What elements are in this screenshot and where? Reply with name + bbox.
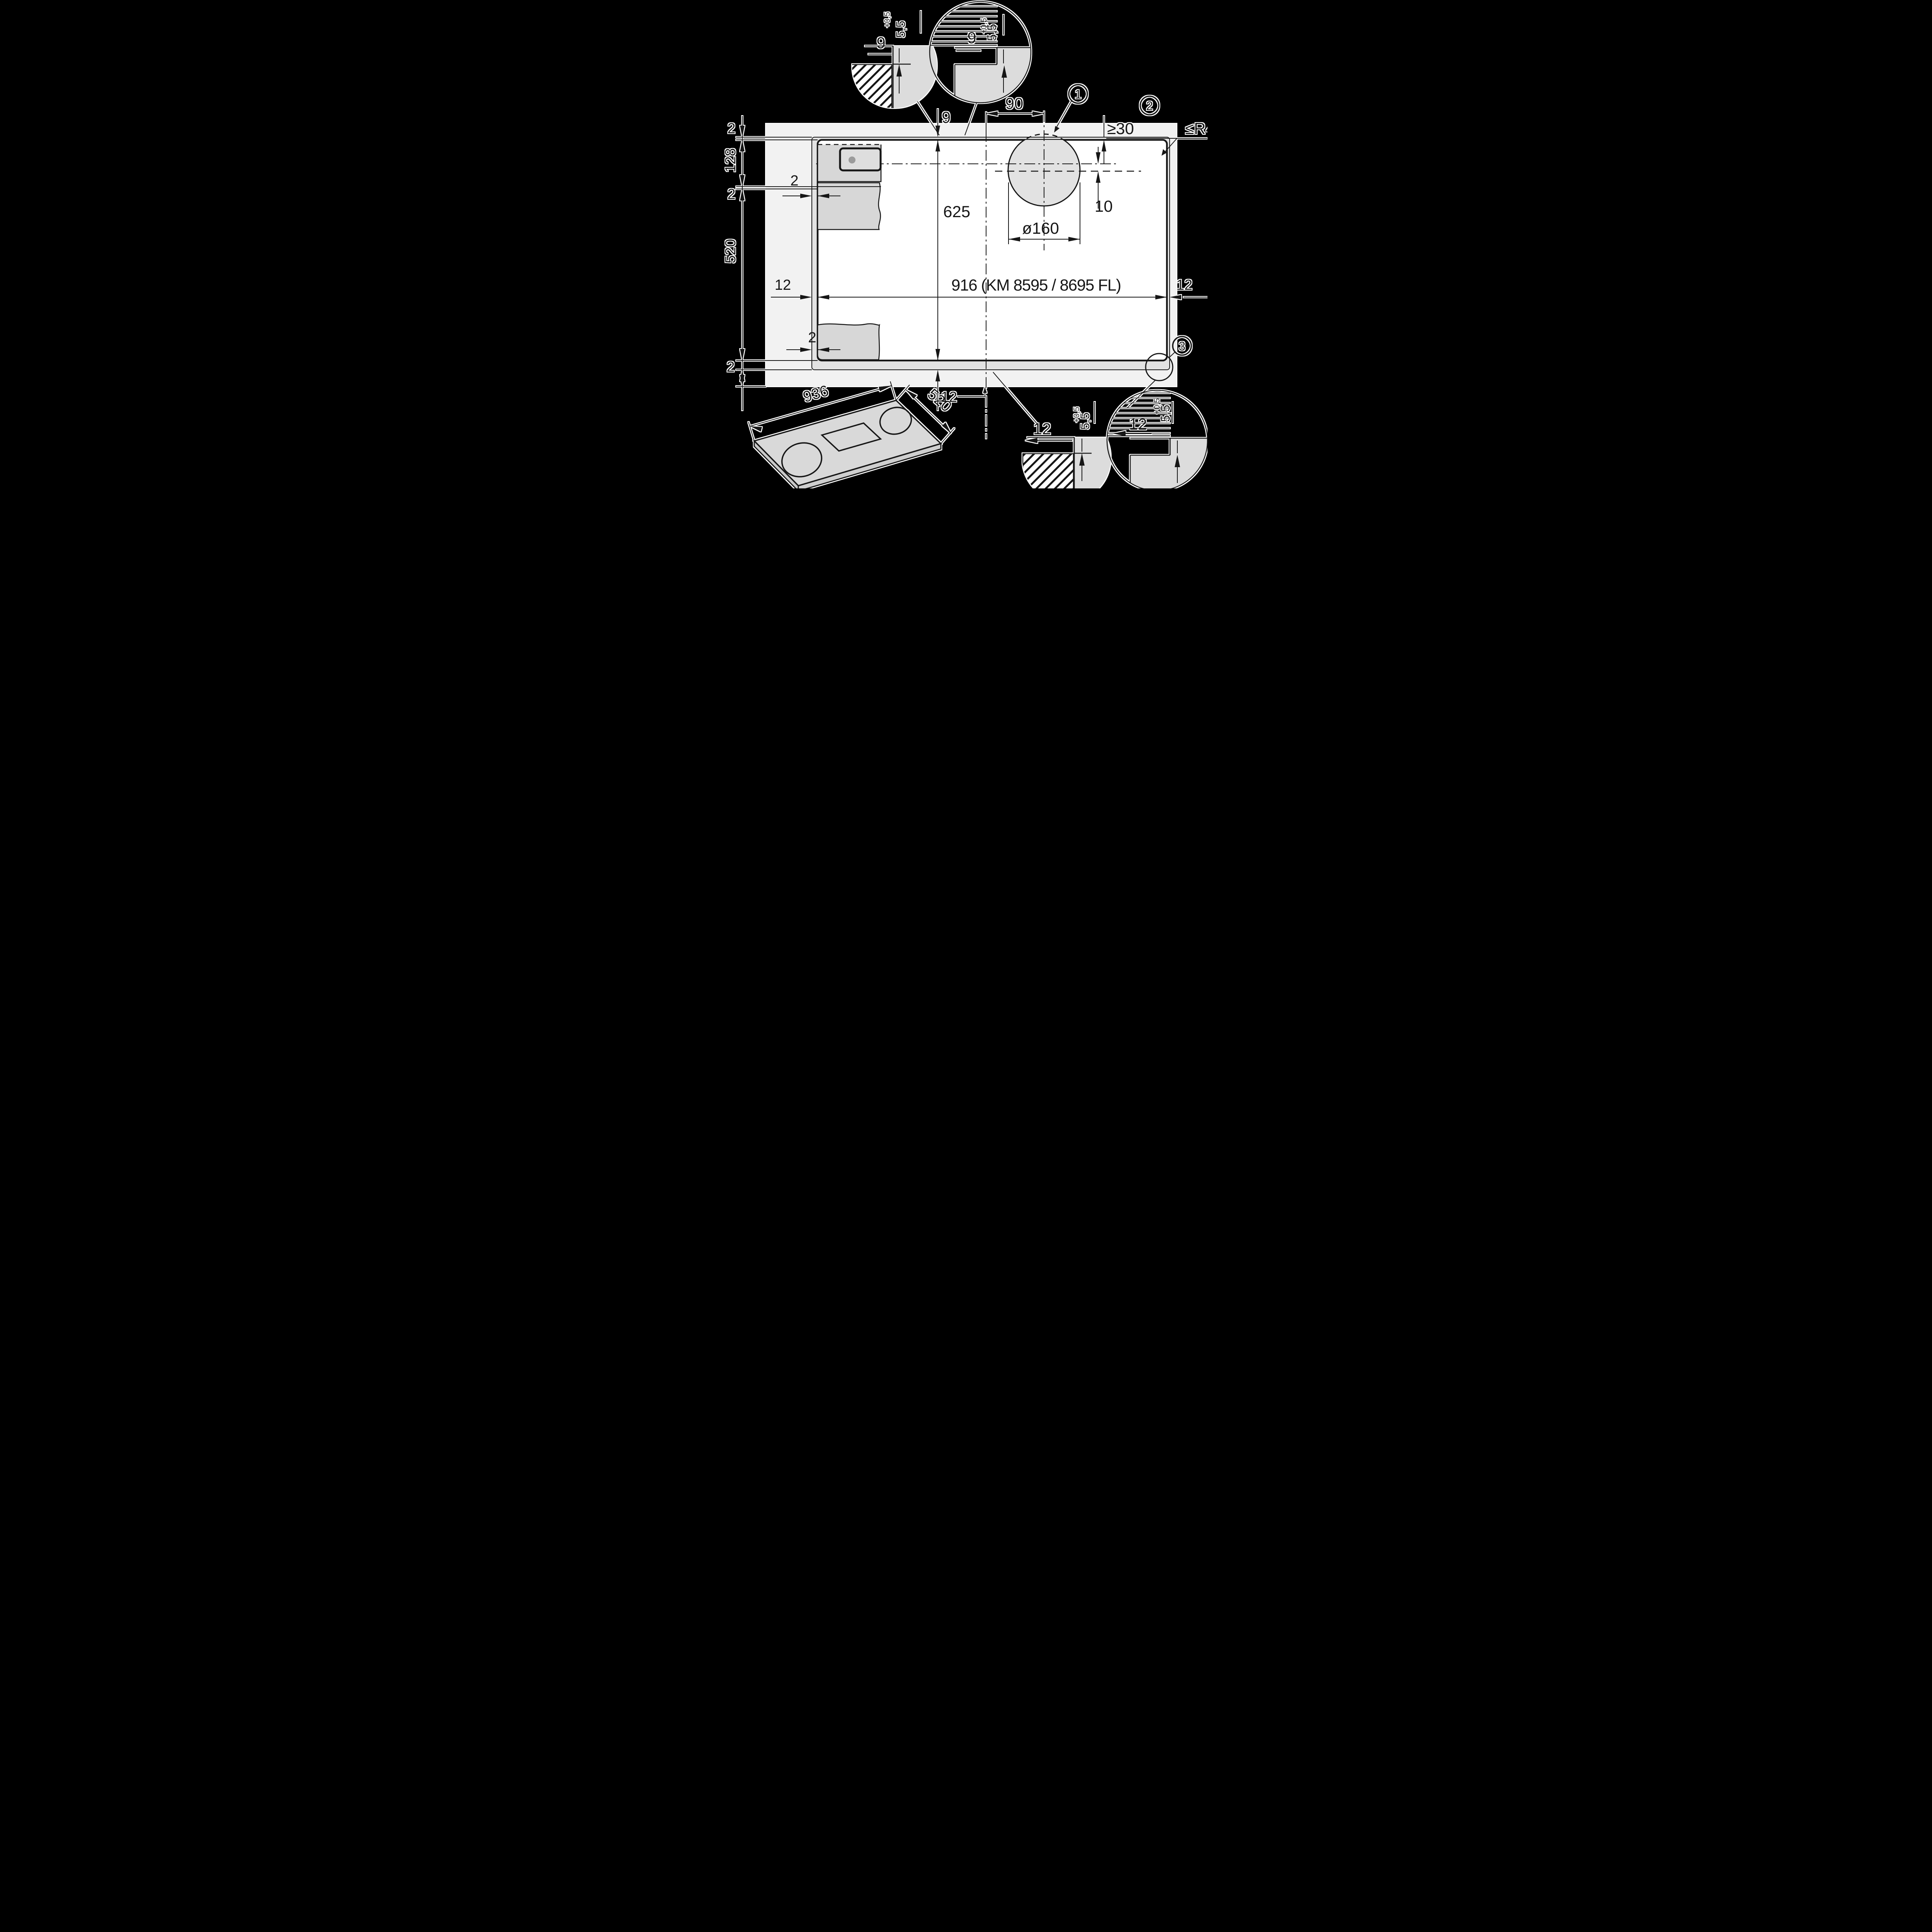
chain-top-gap-label: 2 <box>727 121 735 137</box>
chain-mid-gap-label: 2 <box>727 186 735 202</box>
worktop-hatch <box>851 65 892 121</box>
cable-gland-dot <box>849 156 855 163</box>
detail-tolerance-label: +0,5 <box>1072 407 1081 423</box>
glass-section <box>893 46 940 110</box>
mains-connection-box <box>840 148 881 170</box>
chain-bottom-gap-label: 2 <box>726 359 735 375</box>
hole-diameter-label: ø160 <box>1022 219 1059 237</box>
detail-top-center: 9 5,5 +0,5 <box>930 2 1031 103</box>
mains-box-unit <box>818 145 881 182</box>
detail-width-label: 12 <box>1033 420 1051 438</box>
cabinet-part-upper <box>818 183 881 230</box>
gap-lower-label: 2 <box>808 330 816 346</box>
detail-tolerance-label: +0,5 <box>883 12 892 28</box>
glass-section <box>1130 438 1207 488</box>
width-arrow <box>1025 438 1037 443</box>
cutout-width-label: 916 (KM 8595 / 8695 FL) <box>951 276 1121 294</box>
chain-upper-section-label: 128 <box>724 148 739 172</box>
detail-bottom-right: 12 5,5 +0,5 <box>1107 390 1207 488</box>
hole-offset-h-label: 90 <box>1005 94 1024 112</box>
callout-1-leader <box>1057 101 1071 127</box>
cutout-depth-label: 625 <box>943 202 970 221</box>
corner-radius-label: ≤R4 <box>1185 119 1207 138</box>
chain-depth-label: 520 <box>724 239 739 263</box>
detail-tolerance-label: +0,5 <box>1153 398 1162 414</box>
detail-width-label: 12 <box>1129 415 1147 433</box>
detail-width-label: 9 <box>967 29 976 47</box>
detail-bottom-left: 12 5,5 +0,5 <box>1023 402 1113 488</box>
drawing-canvas: 2 128 2 520 2 2 2 9 625 12 12 12 916 (KM… <box>724 0 1207 488</box>
callout-1-label: 1 <box>1075 87 1082 101</box>
worktop-hatch <box>1023 454 1073 488</box>
ledge-top-label: 9 <box>942 108 951 126</box>
detail-tolerance-label: +0,5 <box>980 18 988 34</box>
installation-drawing: 2 128 2 520 2 2 2 9 625 12 12 12 916 (KM… <box>724 0 1207 488</box>
detail-depth-label: 5,5 <box>894 21 908 38</box>
rear-clearance-label: ≥30 <box>1107 119 1134 138</box>
appliance-isometric-view: 936 520 <box>748 381 955 488</box>
detail-width-label: 9 <box>876 34 885 52</box>
detail-top-left: 9 5,5 +0,5 <box>851 11 940 121</box>
cabinet-part-lower <box>818 324 879 360</box>
ledge-right-label: 12 <box>1176 277 1192 293</box>
hole-offset-v-label: 10 <box>1095 197 1113 215</box>
callout-3-label: 3 <box>1179 339 1185 353</box>
arrow <box>740 126 745 137</box>
callout-2-label: 2 <box>1146 99 1153 113</box>
ledge-bottom-ref <box>958 390 985 396</box>
ledge-left-label: 12 <box>775 277 791 293</box>
gap-upper-label: 2 <box>790 173 798 189</box>
